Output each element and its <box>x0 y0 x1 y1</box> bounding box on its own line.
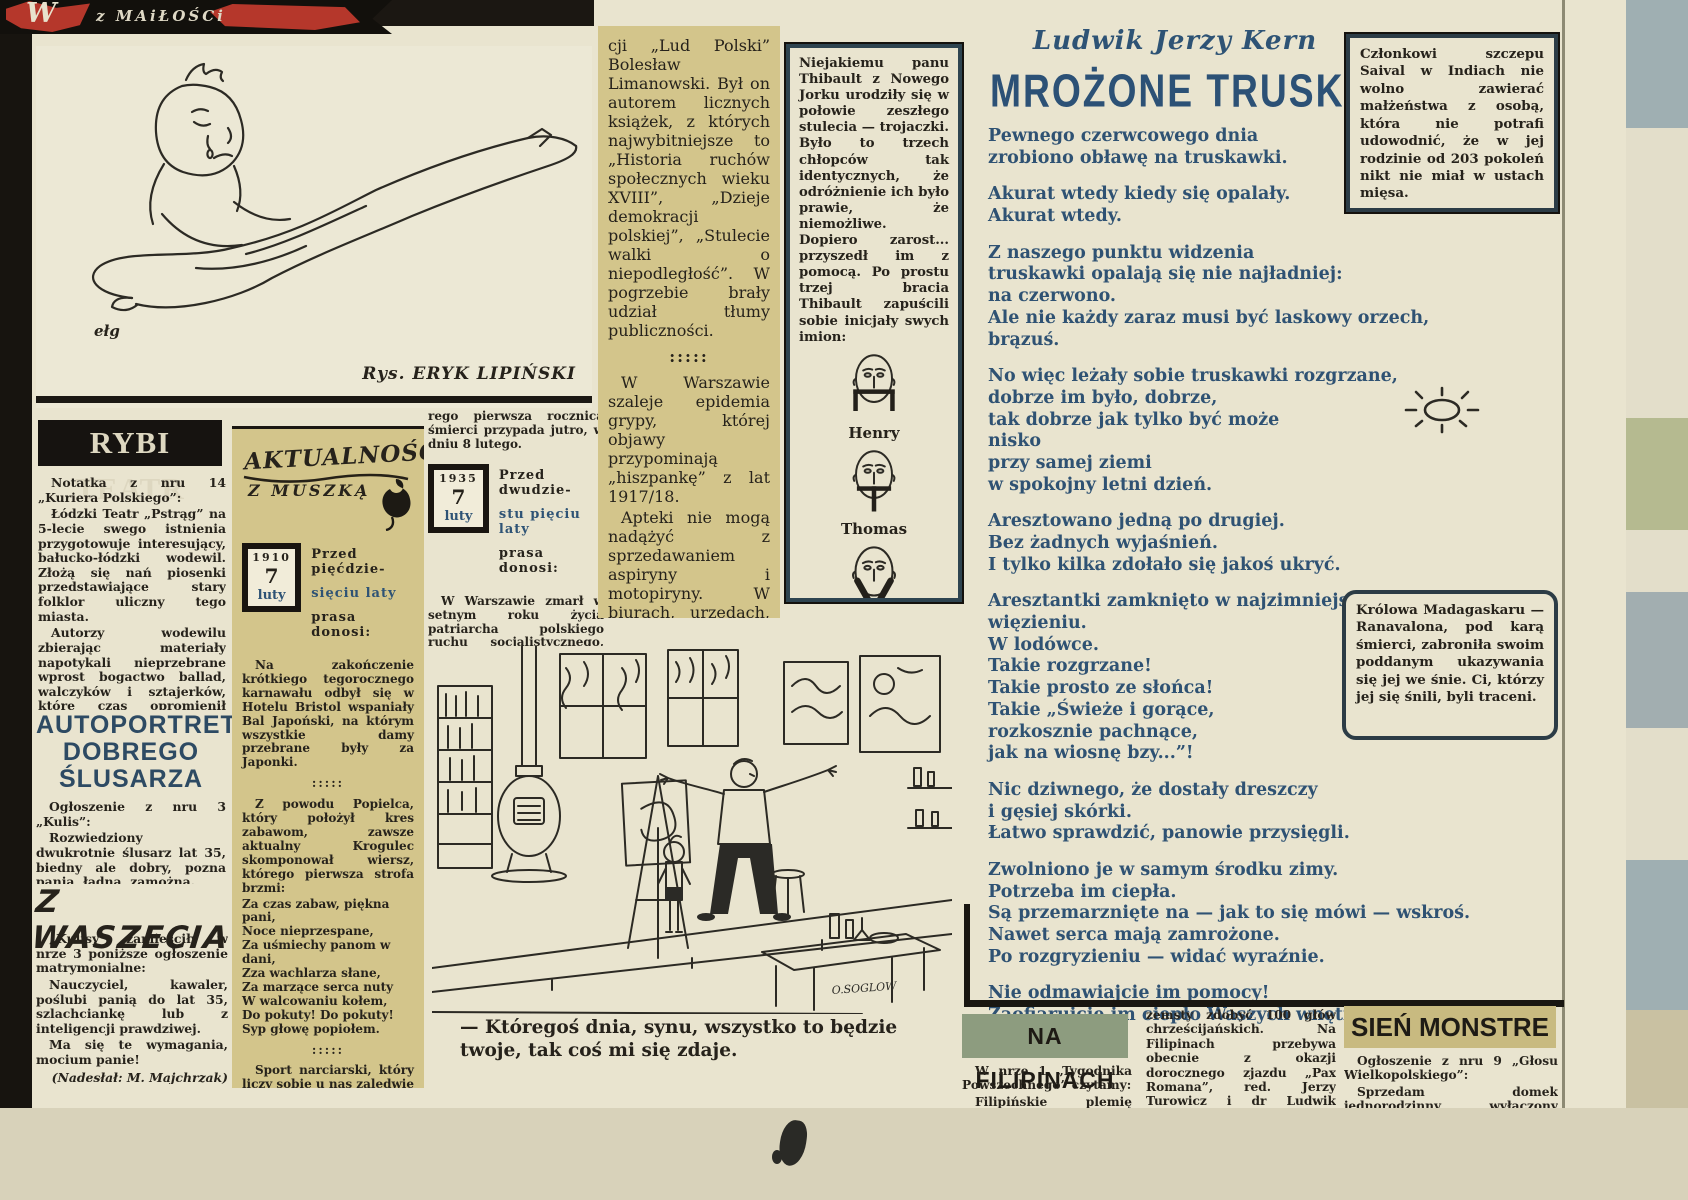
header-line: AUTOPORTRET <box>36 712 226 739</box>
credit: (Nadesłał: M. Majchrzak) <box>36 1071 228 1084</box>
paragraph: Ogłoszenie z nru 3 „Kulis”: <box>36 800 226 829</box>
scan-edge-block <box>1626 418 1688 530</box>
paragraph: rego pierwsza rocznica śmierci przypada … <box>428 410 604 452</box>
cartoon-caption: — Któregoś dnia, synu, wszystko to będzi… <box>460 1016 910 1062</box>
masthead-text-fragment: z MAiŁOŚCi <box>96 7 226 25</box>
paragraph: Na zakończenie krótkiego tegorocznego ka… <box>242 659 414 770</box>
madagascar-fact-box: Królowa Madagaskaru — Ranavalona, pod ka… <box>1342 590 1558 740</box>
logo-flourish <box>242 469 410 483</box>
calendar-label: Przed pięćdzie- sięciu laty prasa donosi… <box>311 543 414 649</box>
henry-face-drawing <box>842 348 906 420</box>
paragraph: W Warszawie szaleje epidemia grypy, któr… <box>608 373 770 506</box>
paragraph: Ogłoszenie z nru 9 „Głosu Wielkopolskieg… <box>1344 1054 1558 1083</box>
label-line: sięciu laty <box>311 586 414 601</box>
fact-text: Królowa Madagaskaru — Ranavalona, pod ka… <box>1356 602 1544 705</box>
autoportret-header: AUTOPORTRETDOBREGOŚLUSARZA <box>36 712 226 793</box>
masthead-fragment: W z MAiŁOŚCi <box>0 0 392 34</box>
calendar-year: 1910 <box>248 551 295 564</box>
poem-frame-left <box>964 904 970 1006</box>
cartoon-drawing: O.SOGLOW <box>432 646 952 1014</box>
poem-stanza: Z naszego punktu widzeniatruskawki opala… <box>988 243 1478 351</box>
ink-blot <box>772 1150 782 1164</box>
verse-line: W walcowaniu kołem, <box>242 995 414 1009</box>
scan-edge-block <box>1626 530 1688 592</box>
calendar-1935-row: 1935 7 luty Przed dwudzie- stu pięciu la… <box>428 464 604 585</box>
face-thomas: Thomas <box>799 444 949 538</box>
paragraph: Rozwiedziony dwukrotnie ślusarz lat 35, … <box>36 831 226 884</box>
scan-edge-block <box>1626 592 1688 728</box>
thibault-box: Niejakiemu panu Thibault z Nowego Jorku … <box>786 44 962 602</box>
calendar-1910: 1910 7 luty <box>242 543 301 612</box>
z-waszecia-article: „Kulisy” zamieściły w nrze 3 poniższe og… <box>36 932 228 1084</box>
section-separator: ::::: <box>242 1044 414 1058</box>
face-label: Henry <box>799 424 949 442</box>
scan-edge-block <box>1626 0 1688 128</box>
verse-line: Noce nieprzespane, <box>242 925 414 939</box>
aktualnosci-logo-line2: Z MUSZKĄ <box>248 481 370 500</box>
paragraph: Nauczyciel, kawaler, poślubi panią do la… <box>36 978 228 1037</box>
poem-byline: Ludwik Jerzy Kern <box>1030 26 1320 56</box>
paragraph: Łódzki Teatr „Pstrąg” na 5-lecie swego i… <box>38 507 226 624</box>
newspaper-page: W z MAiŁOŚCi ełg Rys. ERYK LIPIŃSKI <box>0 0 1688 1200</box>
paragraph: W Warszawie zmarł w setnym roku życia pa… <box>428 595 604 646</box>
scan-edge-bottom <box>0 1108 1688 1200</box>
paragraph: Apteki nie mogą nadążyć z sprzedawaniem … <box>608 508 770 618</box>
soglow-cartoon: O.SOGLOW <box>432 646 952 1014</box>
verse-line: Syp głowę popiołem. <box>242 1023 414 1037</box>
verse-line: Za marzące serca nuty <box>242 981 414 995</box>
label-line: Przed dwudzie- <box>499 468 604 498</box>
calendar-1910-row: 1910 7 luty Przed pięćdzie- sięciu laty … <box>242 543 414 649</box>
paragraph: Ma się te wymagania, mocium panie! <box>36 1038 228 1067</box>
calendar-month: luty <box>248 588 295 603</box>
aktualnosci-column: AKTUALNOŚCI Z MUSZKĄ 1910 7 luty Przed p… <box>232 426 424 1088</box>
autoportret-article: Ogłoszenie z nru 3 „Kulis”: Rozwiedziony… <box>36 800 226 884</box>
paragraph: cji „Lud Polski” Bolesław Limanowski. By… <box>608 36 770 340</box>
thomas-face-drawing <box>842 444 906 516</box>
paragraph: „Kulisy” zamieściły w nrze 3 poniższe og… <box>36 932 228 976</box>
masthead-letter: W <box>26 0 56 29</box>
calendar-day: 7 <box>248 564 295 588</box>
header-line: ŚLUSARZA <box>36 766 226 793</box>
calendar-1935: 1935 7 luty <box>428 464 489 533</box>
calendar-year: 1935 <box>434 472 483 485</box>
verse-line: Za czas zabaw, piękna pani, <box>242 898 414 926</box>
caption-line: — Któregoś dnia, synu, wszystko to będzi… <box>460 1016 910 1039</box>
thibault-text: Niejakiemu panu Thibault z Nowego Jorku … <box>799 56 949 346</box>
masthead-red-shape <box>210 4 360 30</box>
scan-edge-block <box>1626 860 1688 1010</box>
paragraph: zemsty zdobyć 100 głów chrześcijańskich.… <box>1146 1008 1336 1108</box>
poem-stanza: Aresztowano jedną po drugiej.Bez żadnych… <box>988 511 1478 576</box>
news-column: cji „Lud Polski” Bolesław Limanowski. By… <box>598 26 780 618</box>
drawing-credit: Rys. ERYK LIPIŃSKI <box>362 364 576 384</box>
verse-line: Zza wachlarza słane, <box>242 967 414 981</box>
paragraph: Sport narciarski, który liczy sobie u na… <box>242 1064 414 1088</box>
scan-edge-block <box>1626 128 1688 418</box>
aktualnosci-logo: AKTUALNOŚCI Z MUSZKĄ <box>242 435 414 539</box>
verse-line: Do pokuty! Do pokuty! <box>242 1009 414 1023</box>
rybi-teatr-article: Notatka z nru 14 „Kuriera Polskiego”: Łó… <box>38 476 226 710</box>
scan-edge-block <box>1626 1010 1688 1108</box>
paragraph: Autorzy wodewilu zbierając materiały nap… <box>38 626 226 710</box>
paragraph: W nrze 1 „Tygodnika Powszechnego” czytam… <box>962 1064 1132 1093</box>
label-line: prasa donosi: <box>499 546 604 576</box>
na-filipinach-col1: W nrze 1 „Tygodnika Powszechnego” czytam… <box>962 1064 1132 1108</box>
lipinski-caricature: ełg Rys. ERYK LIPIŃSKI <box>36 46 592 408</box>
scan-edge-block <box>1626 728 1688 860</box>
face-henry: Henry <box>799 348 949 442</box>
fact-text: Członkowi szczepu Saival w Indiach nie w… <box>1360 46 1544 201</box>
calendar-month: luty <box>434 509 483 524</box>
verse: Za czas zabaw, piękna pani,Noce nieprzes… <box>242 898 414 1037</box>
divider-rule <box>36 396 592 403</box>
sien-monstre-header: SIEŃ MONSTRE <box>1344 1006 1556 1048</box>
na-filipinach-header: NA FILIPINACH <box>962 1014 1128 1058</box>
face-vernon: Vernon <box>799 540 949 602</box>
paragraph: Z powodu Popielca, który położył kres za… <box>242 798 414 895</box>
label-line: stu pięciu laty <box>499 507 604 537</box>
caption-line: twoje, tak coś mi się zdaje. <box>460 1039 910 1062</box>
na-filipinach-col2: zemsty zdobyć 100 głów chrześcijańskich.… <box>1146 1008 1336 1108</box>
calendar-day: 7 <box>434 485 483 509</box>
calendar-label: Przed dwudzie- stu pięciu laty prasa don… <box>499 464 604 585</box>
header-line: DOBREGO <box>36 739 226 766</box>
sien-monstre-article: Ogłoszenie z nru 9 „Głosu Wielkopolskieg… <box>1344 1054 1558 1108</box>
poem-stanza: Zwolniono je w samym środku zimy.Potrzeb… <box>988 860 1478 968</box>
artist-signature: ełg <box>94 322 120 340</box>
saival-fact-box: Członkowi szczepu Saival w Indiach nie w… <box>1346 34 1558 212</box>
page-fold-line <box>1562 0 1565 1108</box>
section-separator: ::::: <box>242 777 414 791</box>
paragraph: Filipińskie plemię „Łowców Głów” postano… <box>962 1095 1132 1108</box>
vernon-face-drawing <box>842 540 906 602</box>
label-line: Przed pięćdzie- <box>311 547 414 577</box>
scan-edge-left <box>0 0 32 1108</box>
verse-line: Za uśmiechy panom w dani, <box>242 939 414 967</box>
paragraph: Sprzedam domek jednorodzinny wyłączony w… <box>1344 1085 1558 1108</box>
paragraph: Notatka z nru 14 „Kuriera Polskiego”: <box>38 476 226 505</box>
mouse-icon <box>376 475 412 531</box>
crying-man-drawing <box>36 46 592 336</box>
rybi-teatr-header: RYBI TEATR <box>38 420 222 466</box>
label-line: prasa donosi: <box>311 610 414 640</box>
section-separator: ::::: <box>608 347 770 366</box>
sun-doodle <box>1398 380 1486 438</box>
face-label: Thomas <box>799 520 949 538</box>
poem-stanza: Nic dziwnego, że dostały dreszczyi gęsie… <box>988 780 1478 845</box>
middle-column: rego pierwsza rocznica śmierci przypada … <box>428 410 604 646</box>
cartoonist-signature: O.SOGLOW <box>831 979 898 997</box>
poem-body: Pewnego czerwcowego dniazrobiono obławę … <box>988 126 1478 1042</box>
